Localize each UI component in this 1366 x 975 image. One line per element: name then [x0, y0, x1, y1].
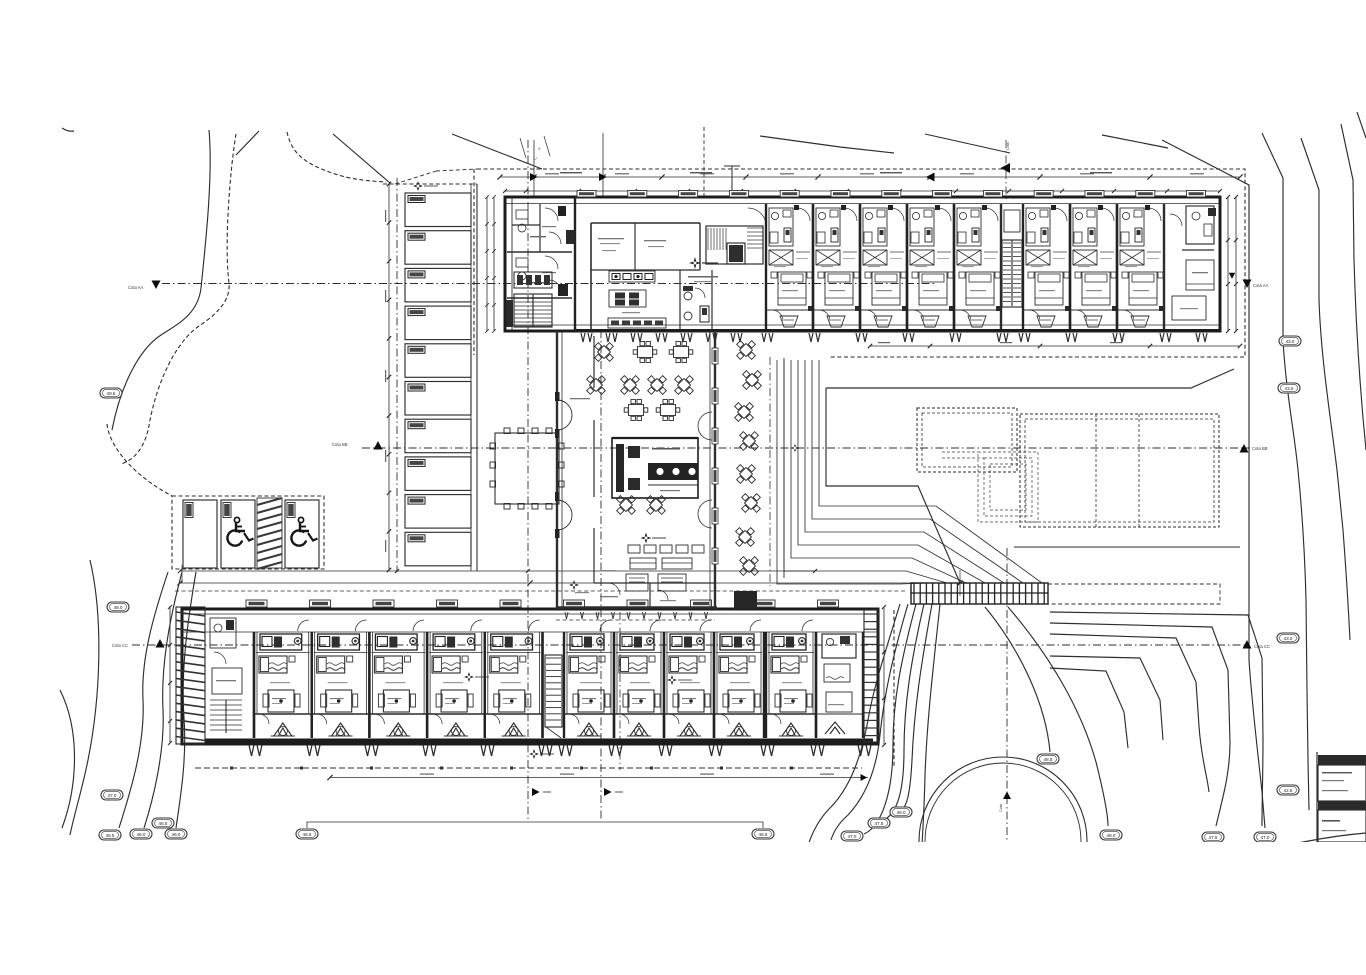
svg-text:43.0: 43.0	[1286, 339, 1295, 344]
svg-text:46.5: 46.5	[759, 832, 768, 837]
svg-text:47.5: 47.5	[1209, 835, 1218, 840]
svg-text:47.5: 47.5	[875, 821, 884, 826]
svg-text:Cota BB: Cota BB	[332, 442, 348, 447]
svg-text:48.0: 48.0	[114, 605, 123, 610]
svg-text:47.0: 47.0	[108, 793, 117, 798]
svg-text:46.0: 46.0	[137, 832, 146, 837]
svg-text:47.0: 47.0	[1261, 835, 1270, 840]
svg-text:49.5: 49.5	[107, 391, 116, 396]
svg-text:Cota AA: Cota AA	[128, 285, 144, 290]
svg-text:48.0: 48.0	[897, 810, 906, 815]
svg-text:Cota CC: Cota CC	[1254, 644, 1270, 649]
svg-text:Cota AA: Cota AA	[1253, 283, 1269, 288]
svg-text:46.5: 46.5	[159, 821, 168, 826]
svg-text:43.5: 43.5	[1285, 386, 1294, 391]
svg-text:Cota CC: Cota CC	[112, 643, 128, 648]
svg-text:43.0: 43.0	[1284, 636, 1293, 641]
svg-text:46.5: 46.5	[303, 832, 312, 837]
svg-text:47.0: 47.0	[848, 834, 857, 839]
svg-text:46.0: 46.0	[172, 832, 181, 837]
svg-text:48.5: 48.5	[1044, 757, 1053, 762]
svg-text:46.5: 46.5	[106, 833, 115, 838]
svg-text:42.5: 42.5	[1284, 788, 1293, 793]
svg-text:Cota: Cota	[999, 803, 1003, 812]
svg-text:Cota: Cota	[1006, 142, 1010, 150]
svg-text:48.0: 48.0	[1107, 833, 1116, 838]
svg-text:Cota BB: Cota BB	[1252, 446, 1268, 451]
